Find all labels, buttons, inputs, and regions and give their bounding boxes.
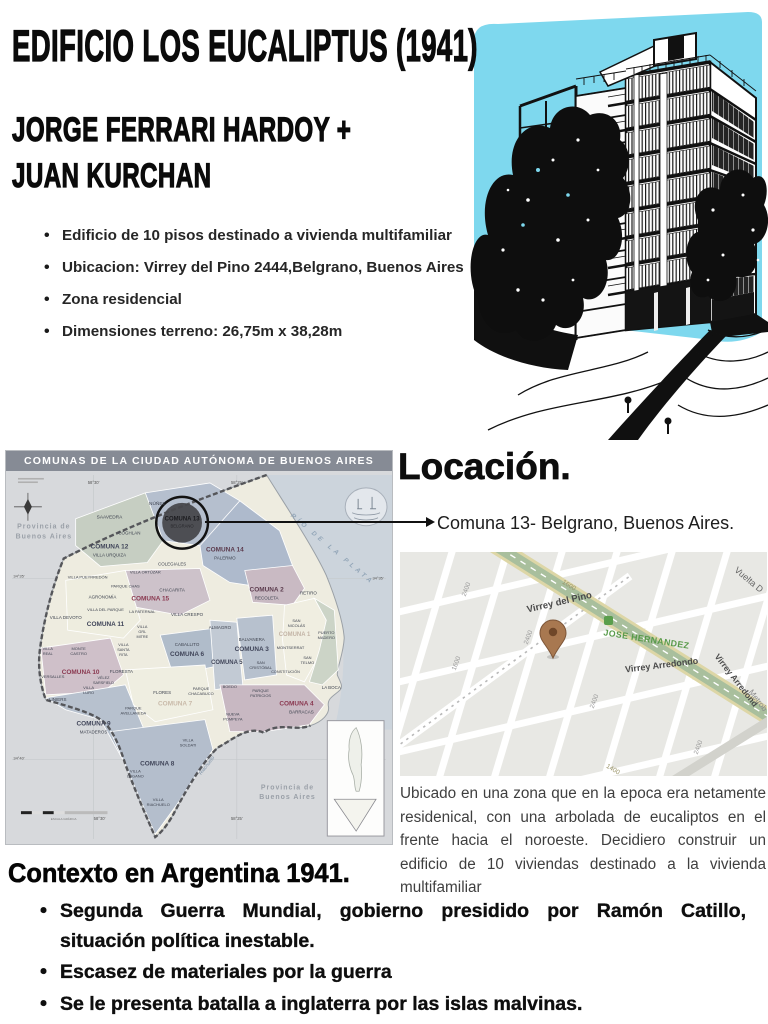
map-label: COMUNA 7: [158, 701, 193, 708]
list-item: Zona residencial: [44, 290, 468, 309]
map-label: COMUNA 15: [131, 595, 169, 602]
map-label: COMUNA 10: [62, 669, 100, 676]
author-line-2: JUAN KURCHAN: [12, 156, 211, 196]
map-label: 58°30': [88, 480, 100, 485]
author-line-1: JORGE FERRARI HARDOY +: [12, 110, 351, 150]
map-label: VILLA DEL PARQUE: [87, 607, 124, 612]
map-label: PARQUE CHAS: [111, 583, 140, 588]
page-title: EDIFICIO LOS EUCALIPTUS (1941): [12, 22, 478, 72]
map-label: COMUNA 5: [211, 660, 243, 666]
location-callout: Comuna 13- Belgrano, Buenos Aires.: [437, 513, 734, 534]
map-label: SAAVEDRA: [97, 515, 123, 521]
map-label: 58°30': [94, 816, 106, 821]
map-label: GRL: [138, 630, 146, 634]
map-label: VILLA DEVOTO: [50, 615, 82, 620]
map-label: COMUNA 14: [206, 547, 244, 554]
context-heading: Contexto en Argentina 1941.: [8, 858, 350, 889]
map-label: BELGRANO: [171, 524, 195, 529]
map-label: LA BOCA: [322, 685, 341, 690]
map-label: RECOLETA: [255, 595, 279, 600]
map-label: CHACABUCO: [188, 691, 213, 696]
building-facts-list: Edificio de 10 pisos destinado a viviend…: [44, 226, 468, 354]
map-label: COLEGIALES: [158, 561, 186, 566]
map-label: COMUNA 9: [76, 721, 111, 728]
map-label: CHACARITA: [159, 587, 185, 592]
map-label: COMUNA 3: [235, 646, 270, 653]
map-label: COMUNA 1: [279, 632, 311, 638]
map-label: 58°25': [231, 816, 243, 821]
map-label: COMUNA 4: [279, 701, 314, 708]
building-ink-drawing-svg: [458, 0, 768, 440]
list-item: Ubicacion: Virrey del Pino 2444,Belgrano…: [44, 258, 468, 277]
presentation-slide: EDIFICIO LOS EUCALIPTUS (1941) JORGE FER…: [0, 0, 768, 1024]
map-label: VILLA: [43, 647, 54, 651]
location-heading: Locación.: [398, 446, 571, 488]
map-label: COMUNA 6: [170, 651, 205, 658]
map-label: COMUNA 11: [87, 621, 125, 628]
map-label: REAL: [43, 652, 53, 656]
map-label: FLORESTA: [110, 669, 133, 674]
map-label: PALERMO: [214, 556, 236, 561]
scale-bar: [21, 811, 108, 814]
subway-station-icon: [604, 616, 613, 625]
map-label: CASTRO: [70, 651, 87, 656]
arrow-right-icon: [426, 517, 435, 527]
map-label: LA PATERNAL: [129, 609, 156, 614]
map-label: 58°25': [231, 480, 243, 485]
map-label: LINIERS: [49, 697, 66, 702]
map-label: COMUNA 2: [250, 586, 285, 593]
argentina-inset-map: [327, 721, 384, 836]
comunas-map: COMUNAS DE LA CIUDAD AUTÓNOMA DE BUENOS …: [5, 450, 393, 845]
map-label: SOLDATI: [180, 743, 197, 748]
map-label: NÚÑEZ: [149, 500, 166, 507]
map-label: RITA: [119, 653, 128, 657]
map-label: Provincia de: [17, 524, 70, 531]
map-label: CABALLITO: [175, 642, 200, 647]
map-label: POMPEYA: [223, 717, 243, 722]
map-label: VÉLEZ: [98, 675, 111, 680]
comunas-map-svg: NÚÑEZSAAVEDRACOMUNA 13BELGRANOCOGHLANCOM…: [6, 471, 392, 844]
list-item: Dimensiones terreno: 26,75m x 38,28m: [44, 322, 468, 341]
map-label: MADERO: [318, 635, 335, 640]
map-label: VILLA: [137, 625, 148, 629]
map-label: VILLA PUEYRREDÓN: [68, 574, 108, 579]
map-label: SARSFIELD: [93, 681, 114, 685]
map-label: FLORES: [153, 690, 171, 695]
map-label: BALVANERA: [239, 637, 265, 642]
map-label: MITRE: [136, 635, 148, 639]
map-label: Buenos Aires: [259, 794, 316, 801]
map-label: PATRICIOS: [250, 693, 271, 698]
map-label: COMUNA 13: [165, 517, 201, 523]
building-illustration: [458, 0, 768, 440]
map-label: BARRACAS: [289, 710, 314, 715]
map-label: VILLA CRESPO: [171, 612, 204, 617]
map-label: VILLA URQUIZA: [93, 553, 126, 558]
map-label: MONTSERRAT: [277, 645, 305, 650]
map-label: LUGANO: [127, 773, 144, 778]
street-map: Virrey del PinoJOSE HERNANDEZVirrey Arre…: [400, 552, 767, 776]
location-description: Ubicado en una zona que en la epoca era …: [400, 782, 766, 900]
map-label: COGHLAN: [118, 531, 140, 536]
list-item: Se le presenta batalla a inglaterra por …: [40, 990, 746, 1020]
map-label: LURO: [83, 690, 94, 695]
map-label: NICOLÁS: [288, 623, 306, 628]
map-label: Buenos Aires: [16, 534, 73, 541]
map-label: 34°35': [13, 573, 24, 578]
map-label: CRISTÓBAL: [249, 665, 272, 670]
map-label: AGRONOMÍA: [89, 593, 117, 599]
map-label: COMUNA 12: [91, 544, 129, 551]
context-list: Segunda Guerra Mundial, gobierno presidi…: [40, 897, 746, 1024]
map-label: ALMAGRO: [209, 625, 232, 630]
map-label: 34°40': [13, 755, 24, 760]
map-title-bar: COMUNAS DE LA CIUDAD AUTÓNOMA DE BUENOS …: [6, 451, 392, 471]
map-label: VILLA: [118, 643, 129, 647]
map-label: AVELLANEDA: [120, 711, 146, 716]
map-title: COMUNAS DE LA CIUDAD AUTÓNOMA DE BUENOS …: [24, 455, 374, 467]
map-label: Provincia de: [261, 784, 314, 791]
list-item: Edificio de 10 pisos destinado a viviend…: [44, 226, 468, 245]
map-label: BOEDO: [223, 684, 237, 689]
callout-line: [205, 521, 426, 523]
map-label: MATADEROS: [80, 730, 108, 735]
map-label: TELMO: [301, 660, 315, 665]
map-label: CONSTITUCIÓN: [271, 669, 300, 674]
list-item: Segunda Guerra Mundial, gobierno presidi…: [40, 897, 746, 956]
map-label: RETIRO: [300, 590, 317, 595]
list-item: Escasez de materiales por la guerra: [40, 958, 746, 988]
map-label: SANTA: [117, 648, 130, 652]
map-label: VERSALLES: [41, 674, 65, 679]
map-label: ESCALA GRÁFICA: [51, 817, 77, 821]
map-label: COMUNA 8: [140, 760, 175, 767]
street-map-svg: Virrey del PinoJOSE HERNANDEZVirrey Arre…: [400, 552, 767, 776]
map-label: VILLA ORTÚZAR: [130, 569, 161, 574]
map-label: RIACHUELO: [147, 802, 170, 807]
